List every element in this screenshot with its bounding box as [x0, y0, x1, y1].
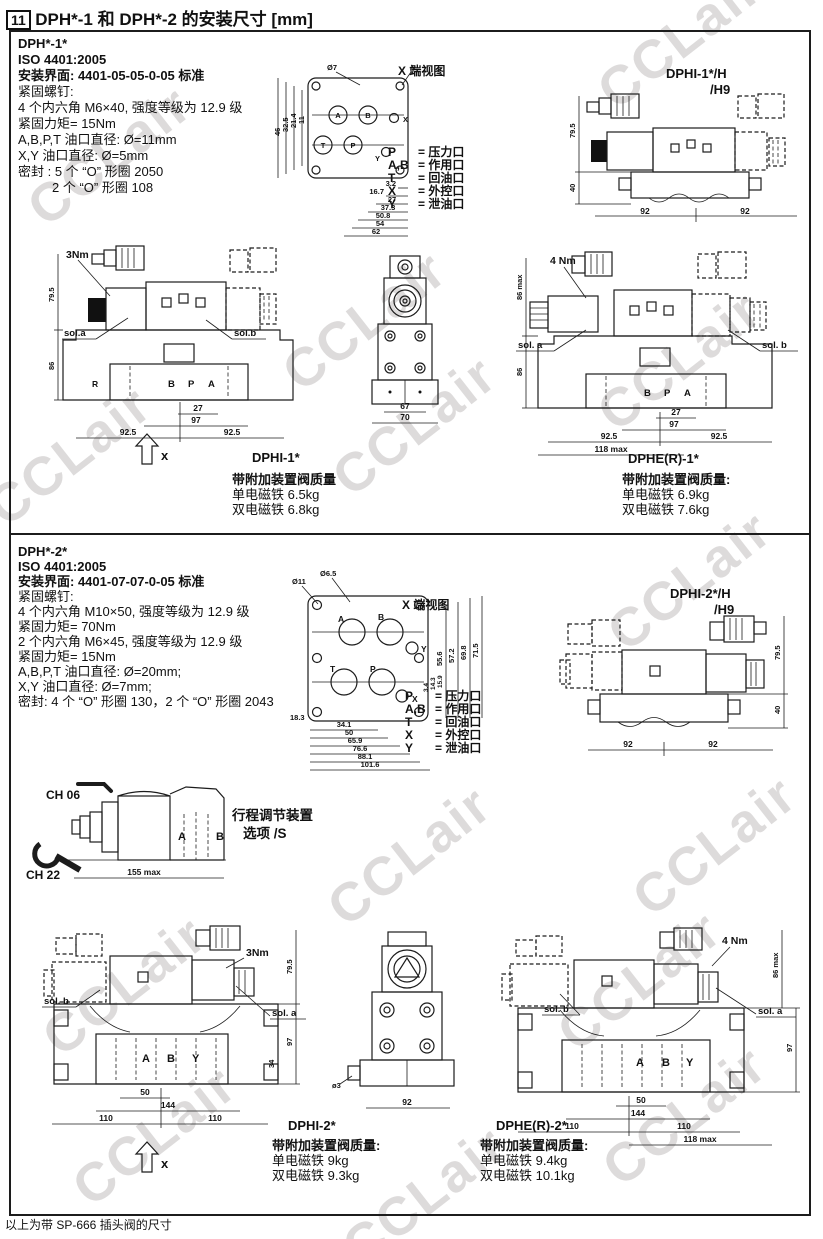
spec-line: 紧固螺钉: [18, 589, 274, 604]
port-letter: A [335, 111, 341, 120]
spec-line: 2 个内六角 M6×45, 强度等级为 12.9 级 [18, 634, 274, 649]
dph1-mounting-interface: 安装界面: 4401-05-05-0-05 标准 [18, 68, 242, 84]
spec-line: 密封 : 5 个 “O” 形圈 2050 [18, 164, 242, 180]
dim-label: Ø7 [327, 63, 337, 72]
dim-label: 86 max [771, 952, 780, 978]
dim-label: 86 max [515, 274, 524, 300]
dim-label: 14.3 [430, 677, 437, 690]
dim-label: 27 [671, 407, 681, 417]
dphi1-h9-drawing: 79.5 40 92 92 [565, 88, 810, 228]
page-title: DPH*-1 和 DPH*-2 的安装尺寸 [mm] [35, 10, 313, 29]
dim-label: 92 [623, 739, 633, 749]
dph2-model: DPH*-2* [18, 544, 274, 559]
dim-label: 97 [285, 1038, 294, 1046]
port-letter: A [684, 388, 691, 399]
port-letter: Y [192, 1053, 200, 1065]
port-letter: X [412, 694, 418, 704]
dphi2-h9-label: DPHI-2*/H [670, 586, 731, 601]
dph2-spec-block: DPH*-2* ISO 4401:2005 安装界面: 4401-07-07-0… [18, 544, 274, 709]
port-letter: P [188, 379, 195, 390]
weight-single: 单电磁铁 6.9kg [622, 487, 730, 502]
dim-label: 50 [636, 1095, 646, 1105]
dim-label: 57.2 [447, 648, 456, 663]
port-letter: A [178, 831, 186, 843]
port-letter: Y [421, 644, 427, 654]
weight-single: 单电磁铁 6.5kg [232, 487, 336, 502]
weight-title: 带附加装置阀质量: [622, 472, 730, 487]
dphi2-front-drawing: 3Nm sol. b sol. a A B Y 79.5 97 34 50 14… [40, 926, 310, 1154]
x-direction-arrow: x [128, 1140, 174, 1174]
port-letter: T [321, 141, 326, 150]
dim-label: 110 [677, 1121, 691, 1131]
dph1-iso: ISO 4401:2005 [18, 52, 242, 68]
dim-label: 3.2 [386, 179, 396, 188]
dim-label: 79.5 [773, 645, 782, 660]
wrench-icon [35, 844, 80, 870]
dim-label: 27 [193, 403, 203, 413]
dim-label: 118 max [594, 444, 627, 454]
port-letter: R [92, 379, 98, 389]
dim-label: 92 [640, 206, 650, 216]
dim-label: 86 [515, 368, 524, 376]
port-letter: P [350, 141, 355, 150]
dim-label: 71.5 [471, 643, 480, 658]
dim-label: 110 [99, 1113, 113, 1123]
port-letter: A [208, 379, 215, 390]
torque-label: 3Nm [246, 947, 269, 959]
dim-label: Ø6.5 [320, 569, 336, 578]
dim-label: 11 [297, 116, 306, 124]
spec-line: 2 个 “O” 形圈 108 [52, 180, 242, 196]
dim-label: 92.5 [601, 431, 618, 441]
spec-line: 紧固力矩= 15Nm [18, 116, 242, 132]
stroke-option-title: 行程调节装置 [232, 804, 313, 824]
weight-double: 双电磁铁 10.1kg [480, 1168, 588, 1183]
dph2-iso: ISO 4401:2005 [18, 559, 274, 574]
port-letter: X [403, 115, 408, 124]
dim-label: 79.5 [285, 959, 294, 974]
port-letter: B [644, 388, 651, 399]
port-letter: B [168, 379, 175, 390]
spec-line: 密封: 4 个 “O” 形圈 130，2 个 “O” 形圈 2043 [18, 694, 274, 709]
dim-label: Ø11 [292, 577, 306, 586]
dim-label: 92 [402, 1097, 412, 1107]
port-letter: A [636, 1057, 644, 1069]
port-letter: Y [686, 1057, 694, 1069]
spec-line: A,B,P,T 油口直径: Ø=11mm [18, 132, 242, 148]
solenoid-a-label: sol. a [518, 340, 543, 351]
port-letter: P [370, 664, 376, 674]
x-arrow-label: x [161, 448, 169, 463]
dim-label: 118 max [683, 1134, 716, 1144]
dim-label: 15.9 [437, 675, 444, 688]
spec-line: 紧固力矩= 15Nm [18, 649, 274, 664]
dim-label: 97 [669, 419, 679, 429]
dim-label: 16.7 [369, 187, 384, 196]
spec-line: 4 个内六角 M10×50, 强度等级为 12.9 级 [18, 604, 274, 619]
x-direction-arrow: x [128, 432, 174, 466]
dim-label: 62 [372, 227, 380, 236]
dph2-mounting-interface: 安装界面: 4401-07-07-0-05 标准 [18, 574, 274, 589]
dim-label: 70 [400, 412, 410, 422]
dphi2-end-view-drawing: ø3 92 [330, 930, 485, 1118]
dim-label: 50 [140, 1087, 150, 1097]
port-letter: B [365, 111, 371, 120]
dim-label: 92 [740, 206, 750, 216]
page-header: 11 DPH*-1 和 DPH*-2 的安装尺寸 [mm] [6, 5, 313, 30]
x-arrow-label: x [161, 1156, 169, 1171]
port-letter: A [338, 614, 344, 624]
dim-label: 69.8 [459, 645, 468, 660]
dim-label: 3.4 [423, 683, 430, 692]
dim-label: 18.3 [290, 713, 305, 722]
section-number: 11 [6, 10, 31, 30]
dphi1-end-view-drawing: 67 70 [346, 252, 471, 427]
dim-label: 79.5 [568, 123, 577, 138]
spec-line: 紧固力矩= 70Nm [18, 619, 274, 634]
port-letter: B [378, 612, 384, 622]
dphi1-weight-block: 带附加装置阀质量 单电磁铁 6.5kg 双电磁铁 6.8kg [232, 472, 336, 517]
torque-label: 3Nm [66, 249, 89, 261]
dim-label: 34 [267, 1059, 276, 1068]
section-divider [9, 533, 809, 535]
dim-label: 101.6 [361, 760, 380, 769]
spec-line: 紧固螺钉: [18, 84, 242, 100]
solenoid-b-label: sol. b [544, 1004, 569, 1015]
dim-label: 155 max [127, 867, 161, 877]
dph1-mounting-face-drawing: A B P T X Y Ø7 5 46 32.5 21.4 11 3.2 16.… [272, 60, 432, 244]
dim-label: 67 [400, 401, 410, 411]
weight-double: 双电磁铁 6.8kg [232, 502, 336, 517]
port-letter: A [142, 1053, 150, 1065]
weight-double: 双电磁铁 9.3kg [272, 1168, 380, 1183]
dphe1-front-drawing: 4 Nm sol. a sol. b B P A 86 max 86 27 97… [514, 244, 809, 472]
dph1-model: DPH*-1* [18, 36, 242, 52]
dim-label: 144 [631, 1108, 645, 1118]
dim-label: 92 [708, 739, 718, 749]
dim-label: 110 [208, 1113, 222, 1123]
footer-note: 以上为带 SP-666 插头阀的尺寸 [5, 1216, 172, 1233]
dph2-mounting-face-drawing: Ø11 Ø6.5 A B T P X Y 55.6 57.2 69.8 71.5… [290, 568, 495, 776]
port-letter: Y [375, 154, 380, 163]
dim-label: 86 [47, 362, 56, 370]
spec-line: 4 个内六角 M6×40, 强度等级为 12.9 级 [18, 100, 242, 116]
dim-label: 144 [161, 1100, 175, 1110]
dim-label: 40 [773, 706, 782, 714]
spec-line: X,Y 油口直径: Ø=5mm [18, 148, 242, 164]
stroke-option-subtitle: 选项 /S [243, 822, 287, 842]
spec-line: X,Y 油口直径: Ø=7mm; [18, 679, 274, 694]
stroke-adjuster-drawing: A B 155 max [16, 774, 234, 892]
dphi1-h9-label: DPHI-1*/H [666, 66, 727, 81]
port-letter: P [664, 388, 671, 399]
dphe2-front-drawing: 4 Nm sol. b sol. a A B Y 86 max 97 50 14… [500, 926, 808, 1158]
weight-double: 双电磁铁 7.6kg [622, 502, 730, 517]
dphe1-weight-block: 带附加装置阀质量: 单电磁铁 6.9kg 双电磁铁 7.6kg [622, 472, 730, 517]
datasheet-page: CCLair CCLair CCLair CCLair CCLair CCLai… [0, 0, 823, 1239]
spec-line: A,B,P,T 油口直径: Ø=20mm; [18, 664, 274, 679]
dim-label: 92.5 [224, 427, 241, 437]
dim-label: ø3 [332, 1081, 341, 1090]
dim-label: 97 [191, 415, 201, 425]
port-letter: B [662, 1057, 670, 1069]
port-letter: B [216, 831, 224, 843]
dim-label: 40 [568, 184, 577, 192]
dphi1-front-drawing: 3Nm sol.a sol.b B P A R 79.5 86 27 97 92… [48, 244, 308, 466]
dphi2-h9-drawing: 79.5 40 92 92 [558, 610, 808, 768]
weight-title: 带附加装置阀质量 [232, 472, 336, 487]
weight-single: 单电磁铁 9kg [272, 1153, 380, 1168]
dim-label: 79.5 [47, 287, 56, 302]
port-letter: T [330, 664, 336, 674]
hex-key-icon [78, 784, 111, 791]
port-letter: B [167, 1053, 175, 1065]
solenoid-b-label: sol. b [762, 340, 787, 351]
solenoid-b-label: sol. b [44, 996, 69, 1007]
dim-label: 92.5 [711, 431, 728, 441]
torque-label: 4 Nm [722, 935, 748, 947]
dim-label: 97 [785, 1044, 794, 1052]
dim-label: 5 [411, 63, 415, 72]
dim-label: 55.6 [435, 651, 444, 666]
dim-label: 110 [565, 1121, 579, 1131]
dph1-spec-block: DPH*-1* ISO 4401:2005 安装界面: 4401-05-05-0… [18, 36, 242, 196]
